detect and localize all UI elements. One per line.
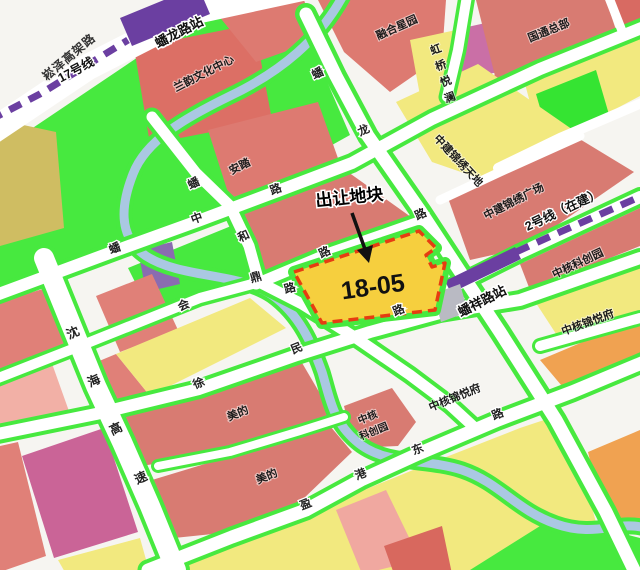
block-olive-west [0,120,64,246]
map-canvas: 18-05 出让地块 崧泽高架路 沈 海 高 速 17号线 2号线（在建） 蟠龙… [0,0,640,570]
planning-map: 18-05 出让地块 崧泽高架路 沈 海 高 速 17号线 2号线（在建） 蟠龙… [0,0,640,570]
